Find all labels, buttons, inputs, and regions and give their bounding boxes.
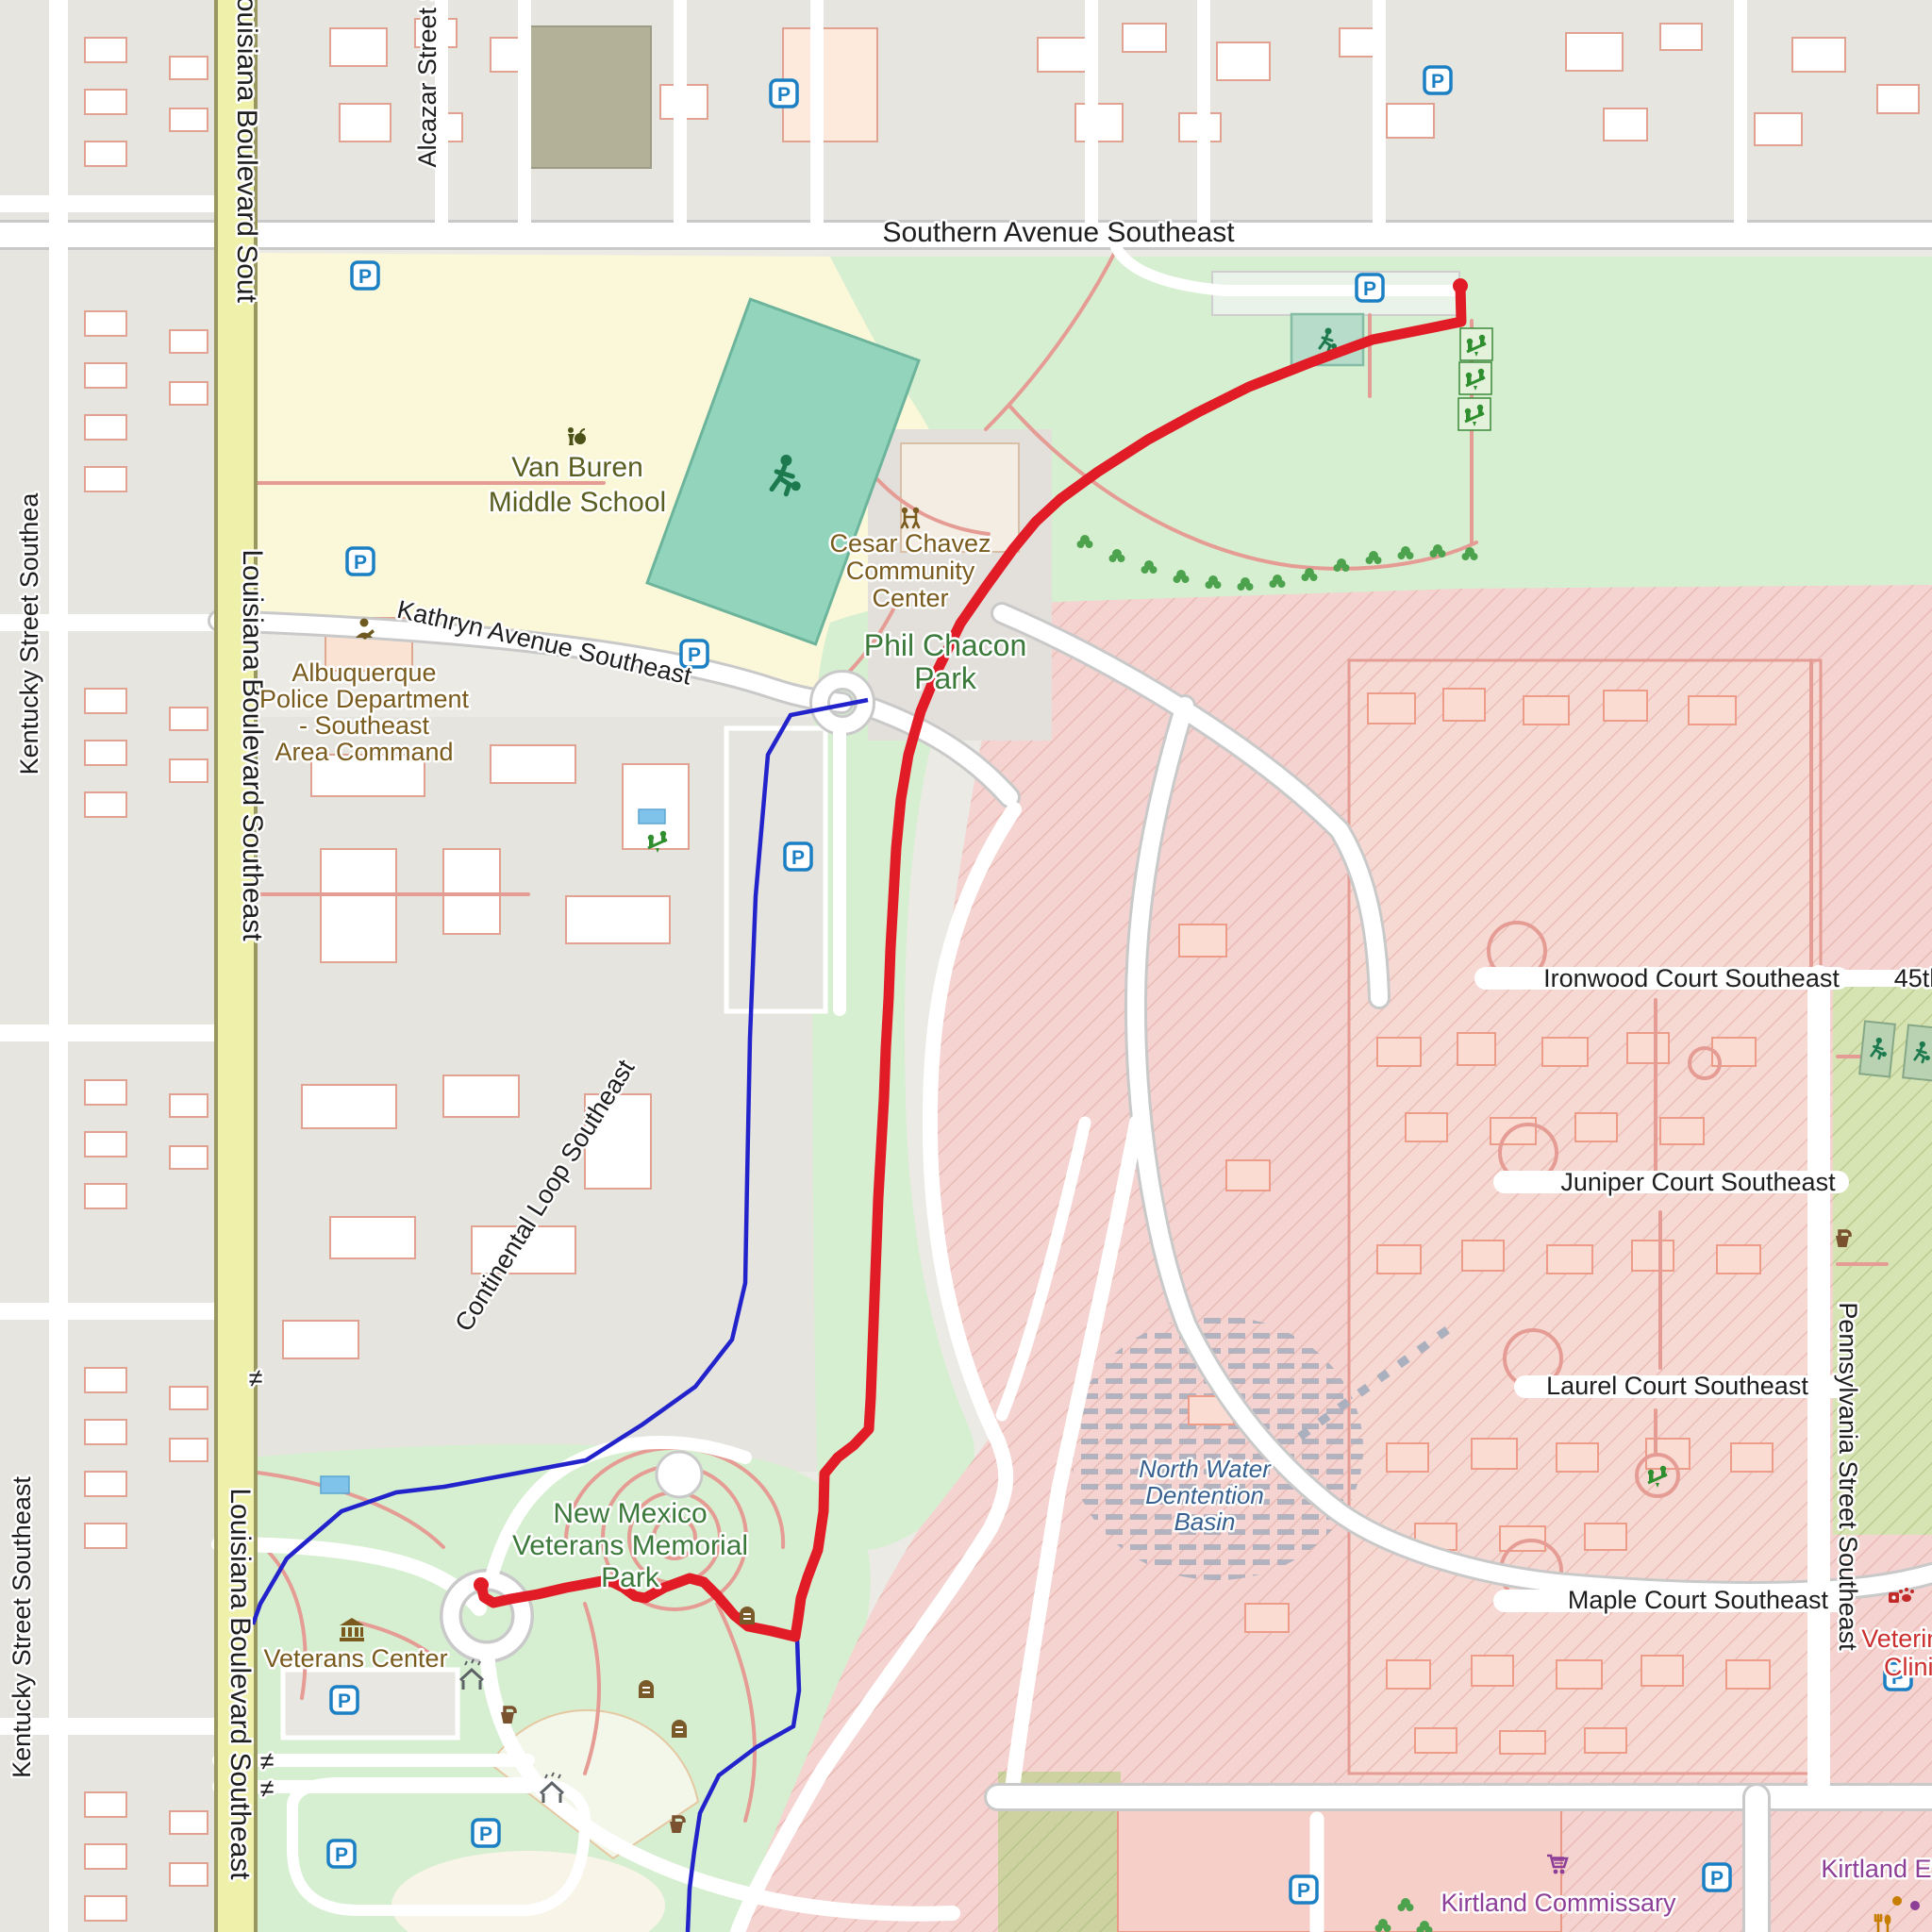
poi-dot-orange — [1892, 1896, 1902, 1906]
label-school-1: Van Buren — [511, 452, 643, 483]
label-louisiana-bottom: Louisiana Boulevard Southeast — [225, 1488, 256, 1880]
label-basin-1: North Water — [1139, 1455, 1272, 1483]
nw-parking-lot — [283, 1670, 458, 1738]
label-phil-2: Park — [914, 661, 977, 695]
corridor-parking-lot — [726, 728, 825, 1011]
label-maple: Maple Court Southeast — [1568, 1586, 1829, 1614]
detention-basin — [1071, 1316, 1363, 1580]
label-apd-2: Police Department — [259, 685, 470, 713]
label-kentucky-top: Kentucky Street Southea — [15, 492, 43, 775]
label-apd-1: Albuquerque — [291, 658, 436, 687]
label-vets-1: New Mexico — [553, 1498, 707, 1529]
label-pennsylvania: Pennsylvania Street Southeast — [1834, 1302, 1862, 1651]
label-clinic-1: Veterinary — [1861, 1624, 1932, 1653]
label-45th: 45th — [1894, 964, 1932, 992]
label-louisiana-top: Louisiana Boulevard Sout — [231, 0, 262, 304]
label-basin-3: Basin — [1174, 1507, 1235, 1536]
label-ironwood: Ironwood Court Southeast — [1543, 964, 1840, 992]
route-start-point[interactable] — [1453, 278, 1468, 293]
label-alcazar: Alcazar Street S — [413, 0, 441, 168]
label-veterans-center: Veterans Center — [263, 1644, 447, 1673]
east-court-2 — [1903, 1024, 1932, 1080]
label-southern-ave: Southern Avenue Southeast — [882, 217, 1235, 248]
label-juniper: Juniper Court Southeast — [1560, 1168, 1836, 1196]
label-exchange: Kirtland Exchange — [1821, 1855, 1932, 1883]
label-laurel: Laurel Court Southeast — [1546, 1372, 1808, 1400]
label-cesar-3: Center — [872, 584, 948, 612]
label-school-2: Middle School — [489, 487, 666, 518]
pool-small — [639, 809, 665, 824]
label-vets-3: Park — [601, 1562, 660, 1593]
label-vets-2: Veterans Memorial — [512, 1530, 748, 1561]
label-cesar-1: Cesar Chavez — [829, 529, 991, 558]
label-louisiana-mid: Louisiana Boulevard Southeast — [237, 549, 268, 941]
route-end-point[interactable] — [474, 1577, 489, 1592]
large-olive-building — [528, 26, 651, 168]
label-basin-2: Dentention — [1145, 1481, 1264, 1509]
gate-icon: ≠ — [260, 1774, 275, 1803]
label-apd-3: - Southeast — [299, 711, 430, 740]
label-cesar-2: Community — [846, 557, 975, 585]
label-commissary: Kirtland Commissary — [1441, 1889, 1676, 1917]
label-kentucky-bottom: Kentucky Street Southeast — [8, 1476, 36, 1778]
label-phil-1: Phil Chacon — [864, 628, 1027, 662]
gate-icon: ≠ — [260, 1747, 275, 1775]
label-clinic-2: Clinic — [1884, 1653, 1932, 1681]
label-apd-4: Area Command — [275, 738, 453, 766]
pool-small-2 — [321, 1476, 349, 1493]
poi-dot-purple — [1910, 1901, 1920, 1910]
map-canvas[interactable]: P — [0, 0, 1932, 1932]
gate-icon: ≠ — [249, 1364, 263, 1392]
